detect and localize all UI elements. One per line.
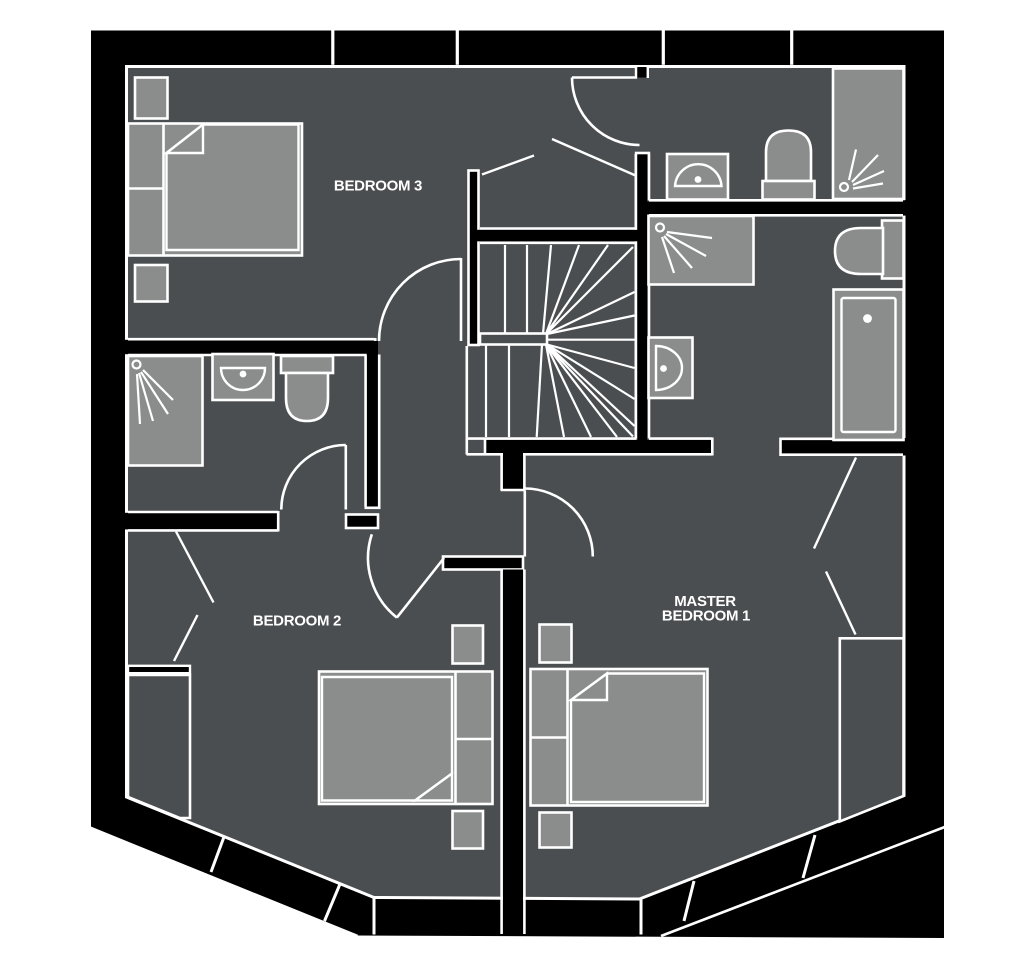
svg-text:BEDROOM 1: BEDROOM 1 bbox=[662, 608, 750, 625]
svg-text:BEDROOM 2: BEDROOM 2 bbox=[253, 613, 341, 630]
svg-text:BEDROOM 3: BEDROOM 3 bbox=[334, 178, 422, 195]
